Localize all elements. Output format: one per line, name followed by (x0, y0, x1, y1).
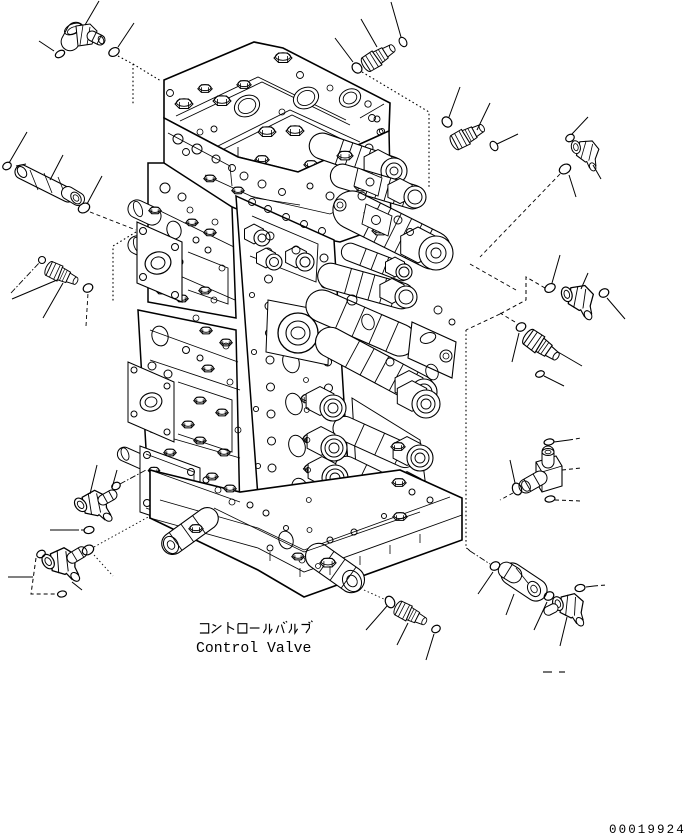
svg-text:Control Valve: Control Valve (196, 641, 311, 657)
svg-text:00019924: 00019924 (609, 823, 686, 836)
